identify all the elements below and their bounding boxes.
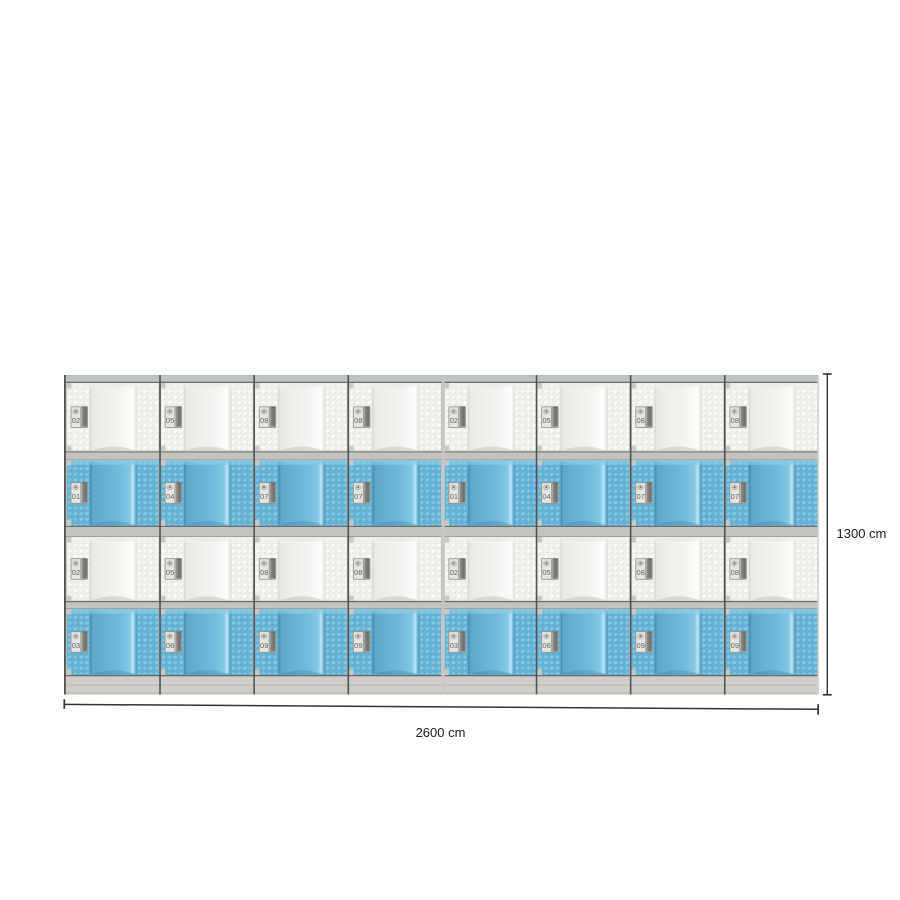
svg-text:04: 04 <box>166 492 174 501</box>
svg-text:08: 08 <box>260 416 268 425</box>
svg-text:07: 07 <box>260 492 268 501</box>
svg-text:08: 08 <box>731 568 739 577</box>
svg-text:06: 06 <box>542 641 550 650</box>
svg-text:07: 07 <box>731 492 739 501</box>
svg-text:01: 01 <box>72 492 80 501</box>
svg-text:08: 08 <box>260 568 268 577</box>
svg-text:08: 08 <box>354 568 362 577</box>
svg-text:09: 09 <box>354 641 362 650</box>
svg-text:09: 09 <box>260 641 268 650</box>
svg-text:1300 cm: 1300 cm <box>837 526 887 541</box>
svg-text:07: 07 <box>354 492 362 501</box>
svg-text:08: 08 <box>637 568 645 577</box>
svg-text:02: 02 <box>72 416 80 425</box>
svg-text:09: 09 <box>731 641 739 650</box>
svg-text:04: 04 <box>542 492 550 501</box>
svg-text:09: 09 <box>637 641 645 650</box>
svg-text:02: 02 <box>450 568 458 577</box>
svg-text:05: 05 <box>542 568 550 577</box>
svg-text:07: 07 <box>637 492 645 501</box>
svg-text:05: 05 <box>542 416 550 425</box>
svg-text:08: 08 <box>354 416 362 425</box>
svg-text:05: 05 <box>166 416 174 425</box>
svg-text:08: 08 <box>731 416 739 425</box>
svg-text:02: 02 <box>72 568 80 577</box>
svg-text:2600 cm: 2600 cm <box>416 725 466 740</box>
svg-text:03: 03 <box>72 641 80 650</box>
svg-text:05: 05 <box>166 568 174 577</box>
svg-text:01: 01 <box>450 492 458 501</box>
svg-text:06: 06 <box>166 641 174 650</box>
svg-text:08: 08 <box>637 416 645 425</box>
svg-text:03: 03 <box>450 641 458 650</box>
svg-text:02: 02 <box>450 416 458 425</box>
